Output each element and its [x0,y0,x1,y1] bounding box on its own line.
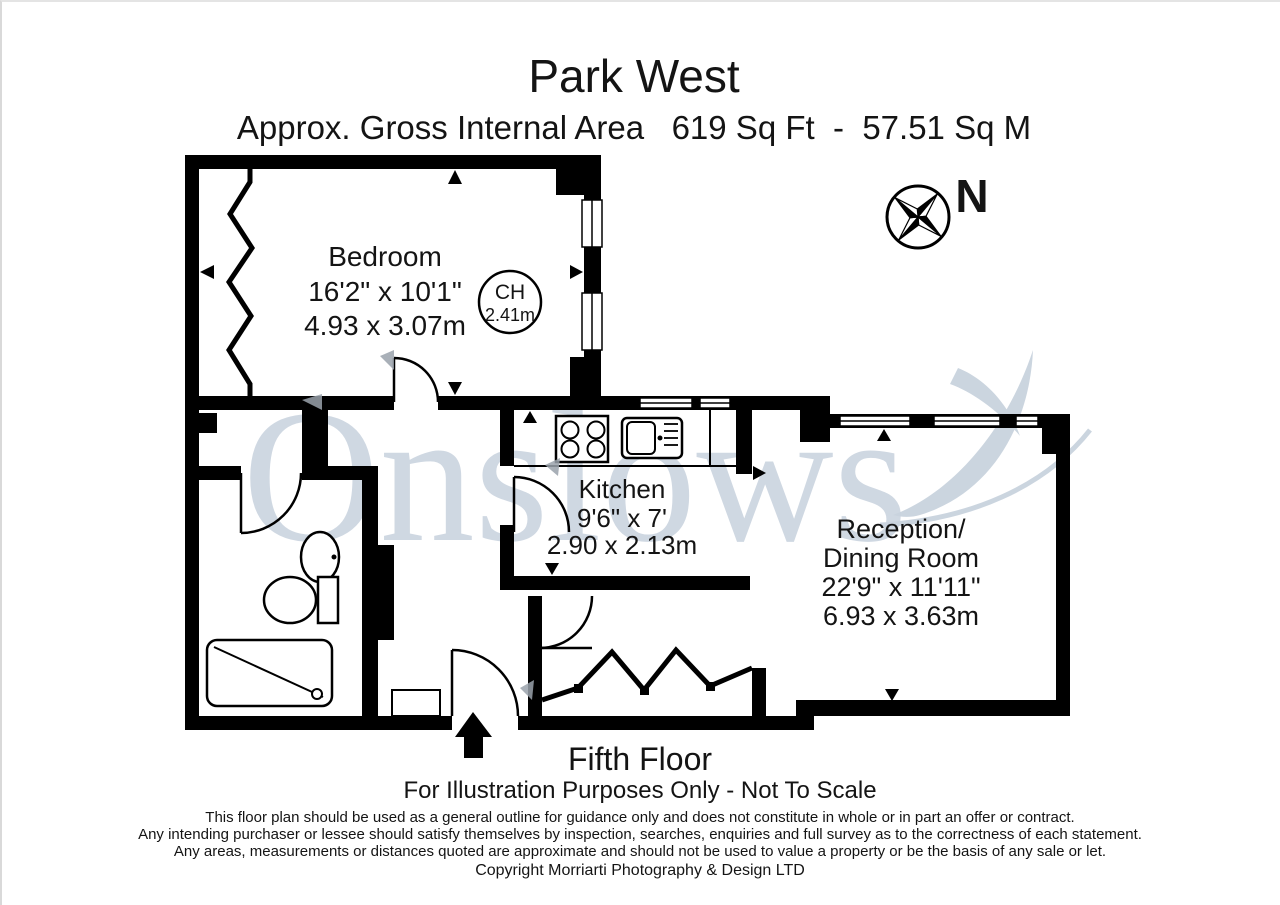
arrow-left-icon [200,265,214,279]
toilet-cistern-icon [318,577,338,623]
compass: N [887,170,989,248]
arrow-down-icon [885,689,899,701]
copyright: Copyright Morriarti Photography & Design… [475,862,805,879]
toilet-bowl-icon [264,577,316,623]
zigzag-ticks [574,682,715,695]
reception-name-line2: Dining Room [823,543,979,573]
sink-icon [622,418,682,458]
page-title: Park West [528,50,740,102]
bedroom-window [582,293,602,350]
hall-door [540,596,592,648]
entrance-arrow-icon [455,712,492,758]
disclaimer-line: Any areas, measurements or distances quo… [174,843,1106,860]
shower-tray-icon [207,640,332,706]
bedroom-name: Bedroom [328,241,442,272]
bedroom-metric: 4.93 x 3.07m [304,310,466,341]
ceiling-height-label: CH [495,281,525,304]
basin-tap-icon [332,555,337,560]
reception-window [1016,416,1038,426]
reception-name-line1: Reception/ [836,514,966,544]
floorplan-canvas: Onslows Park West Approx. Gross Internal… [0,0,1280,905]
floor-label: Fifth Floor [568,741,712,777]
reception-window [934,416,1000,426]
bedroom-window [582,200,602,247]
disclaimer-line: This floor plan should be used as a gene… [205,809,1074,826]
scale-note: For Illustration Purposes Only - Not To … [403,777,876,804]
disclaimer-line: Any intending purchaser or lessee should… [138,826,1142,843]
ceiling-height-value: 2.41m [485,305,535,325]
hob-icon [556,416,608,462]
bedroom-imperial: 16'2" x 10'1" [308,276,462,307]
kitchen-name: Kitchen [579,474,666,504]
footer: Fifth Floor For Illustration Purposes On… [138,741,1142,879]
compass-north-label: N [955,170,988,222]
bedroom-wardrobe-zigzag [229,169,252,396]
kitchen-window [700,398,730,408]
kitchen-imperial: 9'6" x 7' [577,503,667,533]
reception-metric: 6.93 x 3.63m [823,601,979,631]
kitchen-window [640,398,692,408]
entrance-door [452,650,518,716]
arrow-right-icon [570,265,583,279]
reception-window [840,416,910,426]
kitchen-metric: 2.90 x 2.13m [547,530,697,560]
compass-star-icon [895,194,941,240]
arrow-up-icon [448,170,462,184]
page-subtitle: Approx. Gross Internal Area 619 Sq Ft - … [237,109,1031,146]
reception-imperial: 22'9" x 11'11" [821,572,980,602]
hall-cupboard [392,690,440,716]
